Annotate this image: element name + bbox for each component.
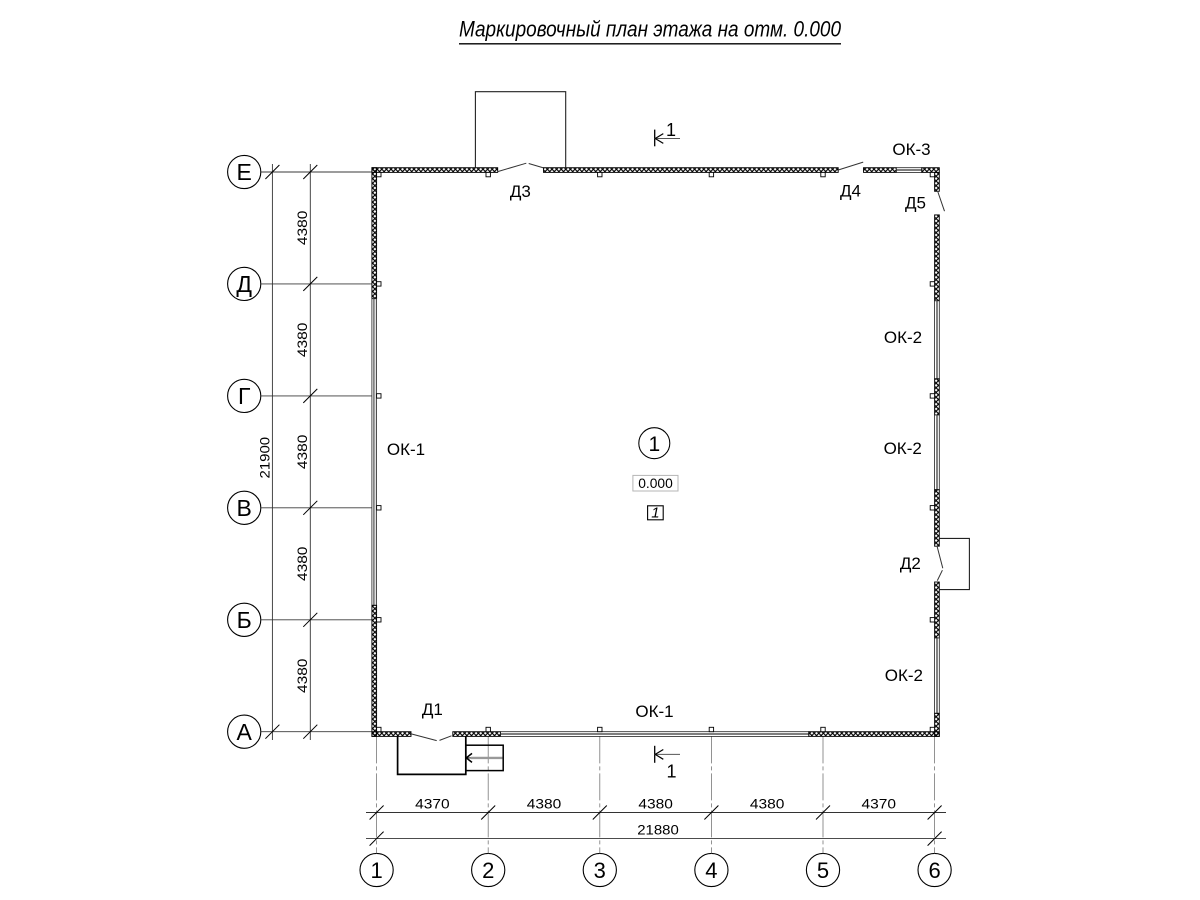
svg-text:Д1: Д1 (422, 700, 443, 719)
svg-text:4380: 4380 (638, 797, 673, 812)
svg-text:4: 4 (705, 858, 717, 883)
svg-text:4380: 4380 (295, 211, 310, 246)
svg-text:1: 1 (651, 505, 659, 522)
svg-text:4380: 4380 (750, 797, 785, 812)
svg-text:4380: 4380 (527, 797, 562, 812)
svg-text:21880: 21880 (637, 823, 679, 838)
svg-text:ОК-2: ОК-2 (885, 666, 923, 685)
svg-text:Б: Б (237, 607, 252, 633)
svg-text:4380: 4380 (295, 547, 310, 582)
svg-text:1: 1 (370, 858, 382, 883)
svg-text:ОК-2: ОК-2 (884, 439, 922, 458)
svg-text:А: А (237, 719, 253, 745)
svg-text:В: В (237, 495, 252, 521)
svg-text:4370: 4370 (415, 797, 450, 812)
svg-text:ОК-2: ОК-2 (884, 328, 922, 347)
svg-text:0.000: 0.000 (638, 476, 673, 491)
svg-text:6: 6 (928, 858, 940, 883)
svg-text:1: 1 (648, 433, 660, 456)
svg-text:Д4: Д4 (840, 182, 861, 201)
svg-text:2: 2 (482, 858, 494, 883)
svg-text:Е: Е (237, 159, 252, 185)
svg-text:Г: Г (238, 383, 251, 409)
svg-text:4380: 4380 (295, 435, 310, 470)
svg-text:1: 1 (666, 120, 676, 140)
svg-text:4380: 4380 (295, 323, 310, 358)
svg-text:Д5: Д5 (905, 193, 926, 212)
svg-text:1: 1 (666, 761, 676, 781)
svg-text:ОК-1: ОК-1 (387, 440, 425, 459)
svg-text:ОК-3: ОК-3 (892, 140, 930, 159)
svg-text:3: 3 (594, 858, 606, 883)
svg-text:Д2: Д2 (900, 554, 921, 573)
svg-text:ОК-1: ОК-1 (635, 702, 673, 721)
svg-text:21900: 21900 (258, 437, 273, 479)
svg-text:Д: Д (236, 271, 252, 297)
svg-text:Д3: Д3 (510, 182, 531, 201)
svg-text:4380: 4380 (295, 659, 310, 694)
svg-text:5: 5 (817, 858, 829, 883)
svg-text:Маркировочный план этажа на от: Маркировочный план этажа на отм. 0.000 (459, 17, 842, 42)
svg-text:4370: 4370 (862, 797, 897, 812)
